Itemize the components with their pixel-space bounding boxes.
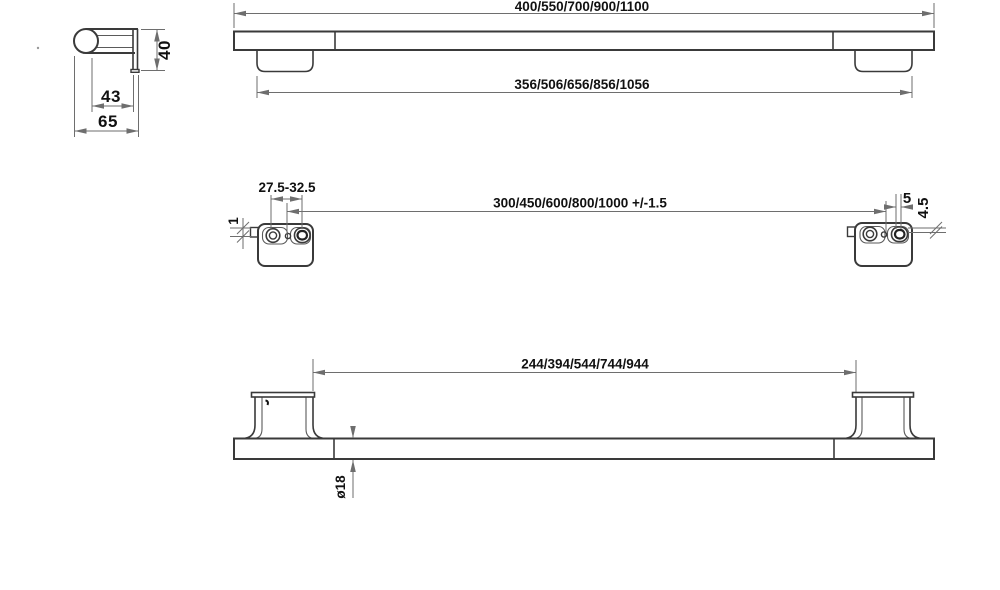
side-view-dimensions: 43 65 40	[75, 30, 175, 138]
bar-front	[234, 32, 934, 51]
post-outer-wall	[843, 397, 856, 439]
dim-label-slot-play: 5	[903, 190, 911, 207]
bar-bottom	[234, 439, 934, 460]
mounting-plate-right	[848, 223, 913, 266]
bracket-left	[257, 50, 313, 72]
plate-foot	[131, 70, 139, 73]
bracket-right	[855, 50, 912, 72]
front-view: 400/550/700/900/1100 356/506/656/856/105…	[234, 0, 934, 98]
post-mark	[266, 401, 268, 406]
bottom-view: 244/394/544/744/944 ø18	[234, 357, 934, 499]
post-outer-wall	[910, 397, 923, 439]
dim-label-screw-centers: 300/450/600/800/1000 +/-1.5	[493, 196, 667, 211]
post-right	[843, 393, 923, 439]
dim-label-bracket-height: 40	[155, 40, 174, 60]
dim-label-mount-outer-span: 356/506/656/856/1056	[514, 77, 650, 92]
mounting-plate-left	[251, 224, 314, 266]
post-outer-wall	[242, 397, 255, 439]
wall-plate	[131, 29, 139, 72]
front-view-dimensions-top: 400/550/700/900/1100	[234, 0, 934, 28]
dim-label-overall-length: 400/550/700/900/1100	[515, 0, 649, 14]
dim-label-slot-center-range: 27.5-32.5	[258, 180, 316, 195]
bottom-view-dimension-clearance: 244/394/544/744/944	[313, 357, 856, 394]
dim-label-plate-lip: 1	[226, 217, 241, 225]
technical-drawing-canvas: 43 65 40 400/550/700/900/1100 356/506/65…	[0, 0, 1000, 590]
dim-label-bracket-depth-overall: 65	[98, 112, 118, 131]
dimension-slot-height: 4.5	[908, 198, 946, 239]
speck	[37, 47, 39, 49]
bar-end-circle	[74, 29, 98, 53]
side-view: 43 65 40	[37, 29, 174, 137]
post-outer-wall	[313, 397, 326, 439]
dim-label-slot-height: 4.5	[915, 198, 932, 219]
post-cap	[252, 393, 315, 398]
dimension-plate-lip: 1	[226, 217, 251, 249]
post-cap	[853, 393, 914, 398]
dim-label-bar-diameter: ø18	[333, 475, 348, 499]
technical-drawing-page: 43 65 40 400/550/700/900/1100 356/506/65…	[0, 0, 1000, 590]
front-view-dimensions-bottom: 356/506/656/856/1056	[257, 76, 912, 98]
dim-label-bracket-depth-inner: 43	[101, 87, 121, 106]
dimension-bar-diameter: ø18	[333, 426, 353, 499]
post-left	[242, 393, 326, 439]
dimension-screw-centers: 300/450/600/800/1000 +/-1.5	[287, 196, 886, 212]
dim-label-inner-clearance: 244/394/544/744/944	[521, 357, 649, 372]
